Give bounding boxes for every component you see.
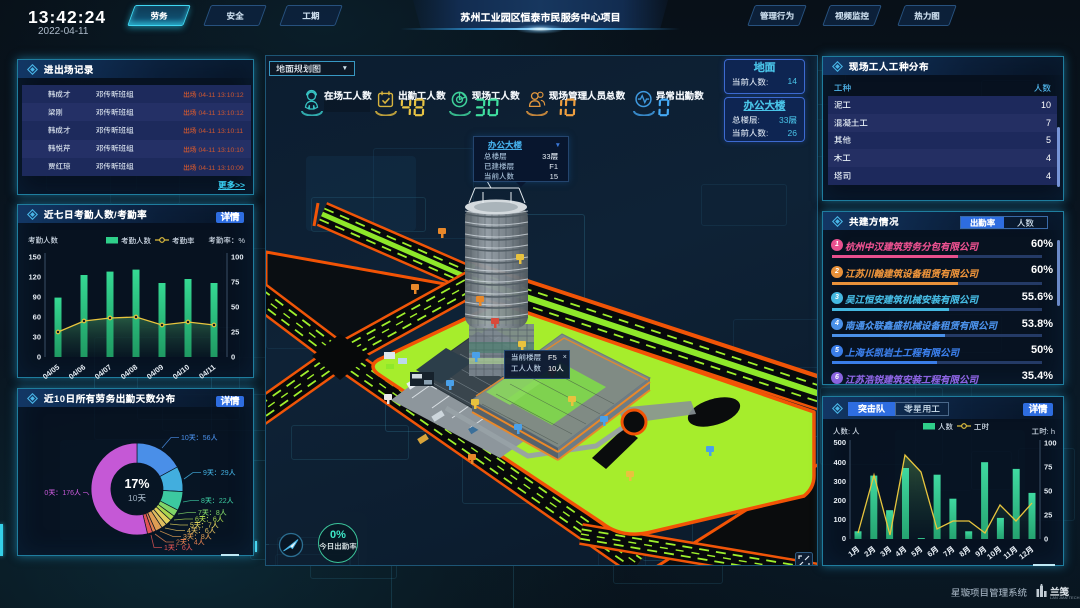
svg-text:200: 200 <box>833 496 846 505</box>
svg-text:1月: 1月 <box>846 544 861 558</box>
svg-text:04/08: 04/08 <box>119 362 139 379</box>
svg-text:7月: 7月 <box>941 544 956 558</box>
svg-text:考勤人数: 考勤人数 <box>121 237 151 246</box>
svg-text:10天：56人: 10天：56人 <box>181 434 218 442</box>
svg-text:10天: 10天 <box>128 493 146 503</box>
svg-text:11月: 11月 <box>1002 544 1020 561</box>
svg-text:30: 30 <box>33 333 41 342</box>
svg-text:04/05: 04/05 <box>41 362 61 379</box>
svg-text:60: 60 <box>33 313 41 322</box>
svg-text:17%: 17% <box>124 477 149 491</box>
svg-text:人数: 人数 <box>938 423 953 432</box>
svg-text:25: 25 <box>231 328 239 337</box>
svg-text:1天：6人: 1天：6人 <box>164 544 193 552</box>
svg-text:300: 300 <box>833 477 846 486</box>
svg-text:5月: 5月 <box>909 544 924 558</box>
svg-text:10月: 10月 <box>985 544 1003 561</box>
svg-text:6月: 6月 <box>925 544 940 558</box>
svg-text:04/11: 04/11 <box>197 362 217 379</box>
svg-text:8天：22人: 8天：22人 <box>201 497 234 505</box>
svg-text:120: 120 <box>28 273 41 282</box>
svg-text:100: 100 <box>231 253 244 262</box>
svg-text:400: 400 <box>833 458 846 467</box>
svg-text:12月: 12月 <box>1017 544 1035 561</box>
svg-text:04/06: 04/06 <box>67 362 87 379</box>
svg-text:考勤率：%: 考勤率：% <box>208 236 245 245</box>
svg-text:0天：176人: 0天：176人 <box>44 489 81 497</box>
svg-text:0: 0 <box>231 353 235 362</box>
svg-text:0: 0 <box>37 353 41 362</box>
svg-text:500: 500 <box>833 438 846 447</box>
svg-text:04/07: 04/07 <box>93 362 113 379</box>
svg-text:4月: 4月 <box>893 544 908 558</box>
svg-text:75: 75 <box>231 278 239 287</box>
svg-text:04/10: 04/10 <box>171 362 191 379</box>
svg-text:8月: 8月 <box>957 544 972 558</box>
svg-text:100: 100 <box>1044 439 1057 448</box>
svg-text:2月: 2月 <box>862 544 877 558</box>
svg-text:0: 0 <box>842 534 846 543</box>
svg-text:75: 75 <box>1044 463 1052 472</box>
svg-text:100: 100 <box>833 515 846 524</box>
svg-text:考勤率: 考勤率 <box>172 237 195 246</box>
svg-text:3月: 3月 <box>878 544 893 558</box>
svg-text:考勤人数: 考勤人数 <box>28 236 58 245</box>
svg-text:工时: 工时 <box>974 423 989 432</box>
svg-text:25: 25 <box>1044 511 1052 520</box>
svg-text:人数: 人: 人数: 人 <box>833 427 860 436</box>
svg-text:90: 90 <box>33 293 41 302</box>
svg-text:04/09: 04/09 <box>145 362 165 379</box>
svg-text:150: 150 <box>28 253 41 262</box>
svg-text:9天：29人: 9天：29人 <box>203 469 236 477</box>
svg-text:50: 50 <box>1044 487 1052 496</box>
svg-text:0: 0 <box>1044 535 1048 544</box>
svg-text:50: 50 <box>231 303 239 312</box>
svg-text:工时: h: 工时: h <box>1032 427 1055 436</box>
